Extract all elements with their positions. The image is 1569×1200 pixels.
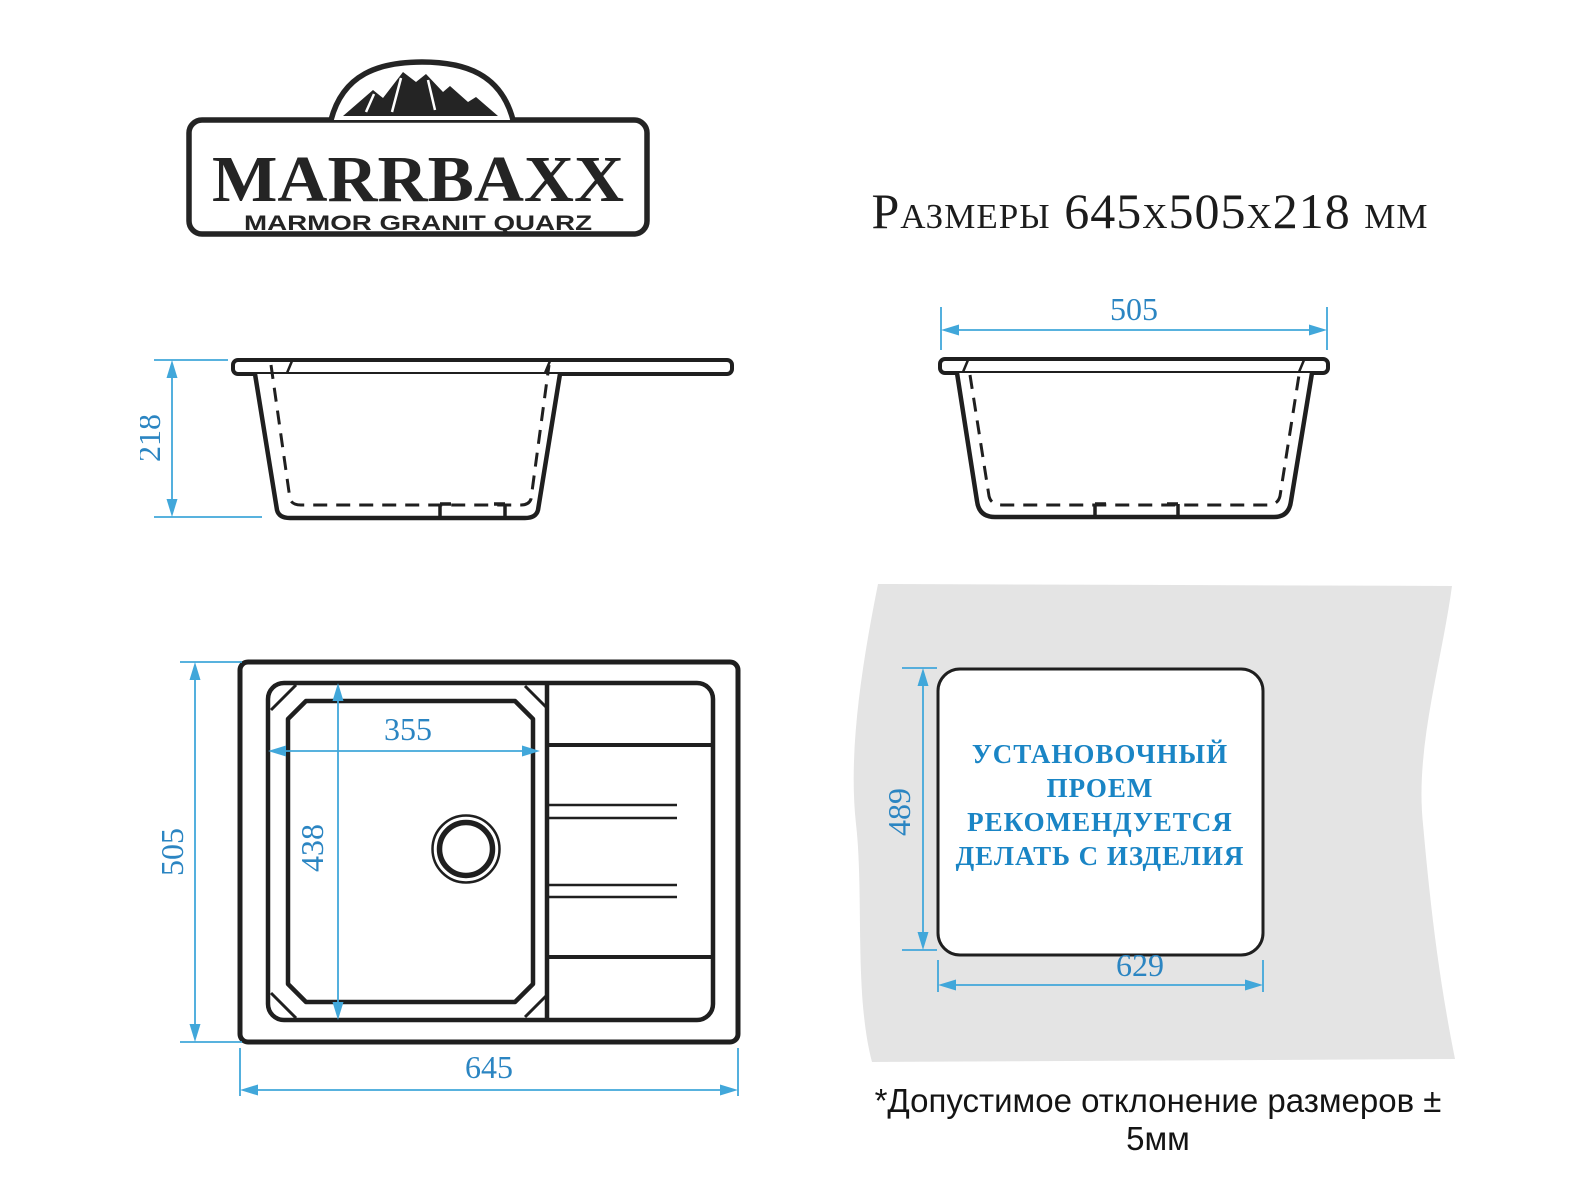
arrow-up-icon (190, 662, 201, 680)
install-note-line-1: УСТАНОВОЧНЫЙ (972, 739, 1228, 769)
logo-tagline-text: MARMOR GRANIT QUARZ (244, 212, 592, 235)
arrow-up-icon (167, 360, 178, 378)
depth-dimension-value: 505 (154, 828, 190, 876)
title-dimensions: 645х505х218 (1064, 183, 1351, 239)
arrow-down-icon (167, 499, 178, 517)
brand-logo: MARRBAXX MARMOR GRANIT QUARZ (183, 50, 653, 250)
front-section-drawing: 218 (140, 340, 820, 540)
cutout-width-dimension-value: 629 (1116, 947, 1164, 983)
sink-rim-profile (233, 360, 732, 374)
side-section-drawing: 505 (900, 290, 1360, 540)
height-dimension-value: 218 (140, 414, 167, 462)
bowl-outer-wall-side (957, 373, 1312, 517)
tolerance-footnote: *Допустимое отклонение размеров ± 5мм (848, 1082, 1468, 1158)
overall-width-dimension-value: 645 (465, 1049, 513, 1085)
install-note-line-3: РЕКОМЕНДУЕТСЯ (967, 807, 1233, 837)
page-title: Размеры 645х505х218 мм (858, 182, 1442, 240)
arrow-left-icon (941, 325, 959, 336)
title-label: Размеры (871, 183, 1050, 239)
title-unit: мм (1364, 183, 1428, 239)
install-note-line-4: ДЕЛАТЬ С ИЗДЕЛИЯ (956, 841, 1245, 871)
installation-diagram: УСТАНОВОЧНЫЙ ПРОЕМ РЕКОМЕНДУЕТСЯ ДЕЛАТЬ … (840, 572, 1475, 1077)
top-view-drawing: 505 645 355 438 (150, 640, 800, 1110)
width-dimension-value: 505 (1110, 291, 1158, 327)
bowl-outer-wall (255, 374, 560, 518)
height-extension-lines (154, 360, 262, 517)
arrow-right-icon (720, 1085, 738, 1096)
arrow-left-icon (240, 1085, 258, 1096)
arrow-down-icon (190, 1024, 201, 1042)
bowl-width-dimension-value: 355 (384, 711, 432, 747)
arrow-right-icon (1309, 325, 1327, 336)
install-note-line-2: ПРОЕМ (1047, 773, 1154, 803)
cutout-height-dimension-value: 489 (881, 788, 917, 836)
technical-drawing-sheet: MARRBAXX MARMOR GRANIT QUARZ Размеры 645… (0, 0, 1569, 1200)
logo-brand-text: MARRBAXX (212, 143, 624, 216)
sink-rim-profile-side (940, 359, 1328, 373)
bowl-depth-dimension-value: 438 (294, 824, 330, 872)
